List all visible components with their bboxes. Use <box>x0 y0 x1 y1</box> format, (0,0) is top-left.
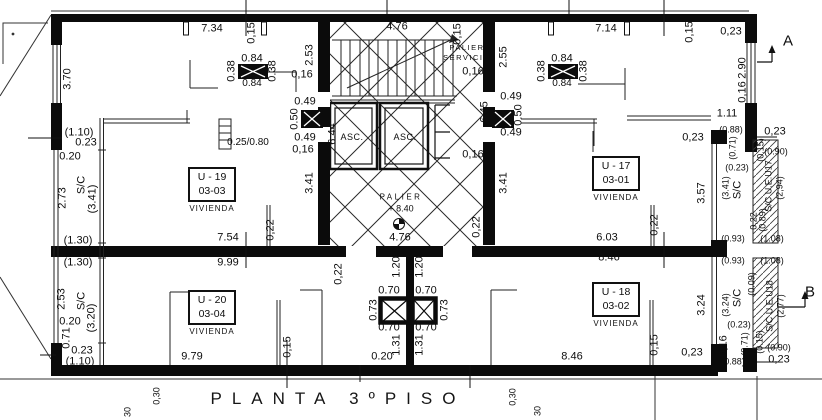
dimension-label: 0,23 <box>768 355 789 366</box>
unit-id: U - 20 <box>198 294 227 306</box>
dimension-label: 0.38 <box>579 60 590 81</box>
dimension-label: S/C U.E.U18 <box>766 280 775 332</box>
dimension-label: (1.30) <box>64 258 93 269</box>
dimension-label: 0.20 <box>59 152 80 163</box>
dimension-label: (3.24) <box>722 293 731 317</box>
dimension-label: 0.84 <box>242 79 261 89</box>
floor-plan-sheet: 7.340,154.760,157.140,150,232.900,161.11… <box>0 0 822 420</box>
dimension-label: 2.53 <box>305 44 316 65</box>
palier-servicio-label: PALIER SERVICIO <box>443 43 491 63</box>
dimension-label: 0.84 <box>552 79 571 89</box>
palier-servicio-line1: PALIER <box>449 43 484 52</box>
dimension-label: (0.90) <box>764 148 788 157</box>
dimension-label: 6.03 <box>596 233 617 244</box>
section-arrow-a <box>757 45 776 62</box>
dimension-label: 0.38 <box>268 60 279 81</box>
dimension-label: 0,16 <box>719 335 730 356</box>
unit-box: U - 17 03-01 <box>592 156 640 191</box>
plan-title: PLANTA 3ºPISO <box>183 389 493 409</box>
dimension-label: 1.11 <box>717 109 738 120</box>
dimension-label: 0,15 <box>247 22 258 43</box>
dimension-label: 6.44 <box>328 123 339 144</box>
dimension-label: 0,16 <box>462 67 483 78</box>
dimension-label: (0.09) <box>748 272 757 296</box>
dimension-label: 0,16 <box>292 145 313 156</box>
dimension-label: 0,16 <box>462 150 483 161</box>
unit-number: 03-04 <box>199 308 226 320</box>
dimension-label: (0.23) <box>727 321 751 330</box>
dimension-label: 6.45 <box>480 101 491 122</box>
unit-id: U - 17 <box>602 160 631 172</box>
unit-box: U - 20 03-04 <box>188 290 236 325</box>
dimension-label: 0.38 <box>227 60 238 81</box>
dimension-label: 0,16 <box>291 70 312 81</box>
dimension-label: (0.93) <box>721 257 745 266</box>
elevator-1-label: ASC. <box>340 132 363 142</box>
dimension-label: 3.24 <box>697 294 708 315</box>
dimension-label: S/C <box>733 181 744 199</box>
dimension-label: 7.34 <box>201 24 222 35</box>
dimension-label: 0.73 <box>369 299 380 320</box>
dimension-label: (0.71) <box>741 332 750 356</box>
dimension-label: 0.23 <box>75 138 96 149</box>
dimension-label: (1.10) <box>66 357 95 368</box>
dimension-label: 0,23 <box>720 27 741 38</box>
dimension-label: 0,30 <box>153 387 162 405</box>
dimension-label: (0.88) <box>719 126 743 135</box>
dimension-label: S/C U.E.U17 <box>765 160 774 212</box>
dimension-label: (3.41) <box>88 185 99 214</box>
unit-box: U - 19 03-03 <box>188 167 236 202</box>
dimension-label: 0.70 <box>415 323 436 334</box>
unit-u18: U - 18 03-02 VIVIENDA <box>592 282 640 328</box>
dimension-label: 0,22 <box>472 216 483 237</box>
palier-label: PALIER + 8.40 <box>380 193 423 214</box>
dimension-label: 0,15 <box>453 23 464 44</box>
elevator-2-label: ASC. <box>393 132 416 142</box>
unit-use: VIVIENDA <box>188 204 236 213</box>
unit-id: U - 19 <box>198 171 227 183</box>
dimension-label: 7.14 <box>595 24 616 35</box>
dimension-label: 1.20 <box>392 256 403 277</box>
dimension-label: 0,15 <box>650 334 661 355</box>
dimension-label: 0.49 <box>500 92 521 103</box>
dimension-label: 4.76 <box>386 22 407 33</box>
dimension-label: (3.41) <box>722 176 731 200</box>
unit-use: VIVIENDA <box>592 193 640 202</box>
dimension-label: (1.08) <box>760 257 784 266</box>
dimension-label: (0.88) <box>721 358 745 367</box>
section-marker-a: A <box>783 33 793 50</box>
dimension-label: 0,30 <box>509 388 518 406</box>
dimension-label: 0,23 <box>764 127 785 138</box>
dimension-label: 0,22 <box>266 219 277 240</box>
unit-use: VIVIENDA <box>188 327 236 336</box>
dimension-label: 0,23 <box>681 348 702 359</box>
unit-box: U - 18 03-02 <box>592 282 640 317</box>
unit-u17: U - 17 03-01 VIVIENDA <box>592 156 640 202</box>
dimension-label: 4.76 <box>389 233 410 244</box>
dimension-label: (2,77) <box>777 294 786 318</box>
palier-text: PALIER <box>380 193 423 202</box>
dimension-label: 0,15 <box>685 21 696 42</box>
dimension-label: (0.71) <box>729 136 738 160</box>
dimension-label: 8.46 <box>561 352 582 363</box>
dimension-label: 0,22 <box>650 214 661 235</box>
dimension-label: 0.84 <box>551 54 572 65</box>
dimension-label: 2.53 <box>57 288 68 309</box>
dimension-label: 3.41 <box>305 172 316 193</box>
unit-number: 03-01 <box>603 174 630 186</box>
dimension-label: 9.99 <box>217 258 238 269</box>
dimension-label: (0.89) <box>759 208 768 232</box>
palier-servicio-line2: SERVICIO <box>443 53 491 62</box>
dimension-label: 30 <box>534 406 543 416</box>
dimension-label: 0.84 <box>241 54 262 65</box>
dimension-label: S/C <box>733 289 744 307</box>
dimension-label: 3.70 <box>63 68 74 89</box>
dimension-label: 8.46 <box>598 253 619 264</box>
dimension-label: 0.49 <box>294 133 315 144</box>
dimension-label: 0.50 <box>290 108 301 129</box>
dimension-label: 0.49 <box>294 97 315 108</box>
unit-use: VIVIENDA <box>592 319 640 328</box>
dimension-label: 1.31 <box>415 334 426 355</box>
dimension-label: 3.41 <box>499 172 510 193</box>
dimension-label: 7.54 <box>217 233 238 244</box>
unit-u20: U - 20 03-04 VIVIENDA <box>188 290 236 336</box>
dimension-label: 3.57 <box>697 182 708 203</box>
dimension-label: (2,94) <box>776 176 785 200</box>
dimension-label: 0.25/0.80 <box>227 138 269 148</box>
dimension-label: 0.73 <box>440 299 451 320</box>
dimension-label: (0.90) <box>767 344 791 353</box>
dimension-label: (1.08) <box>760 235 784 244</box>
dimension-label: 0,23 <box>682 133 703 144</box>
dimension-label: (1.30) <box>64 236 93 247</box>
dimension-label: 0.50 <box>514 104 525 125</box>
dimension-label: (0.93) <box>721 235 745 244</box>
dimension-label: 30 <box>124 407 133 417</box>
dimension-label: 2.90 <box>738 57 749 78</box>
dimension-label: 0,22 <box>334 263 345 284</box>
palier-level: + 8.40 <box>380 204 423 214</box>
dimension-label: (3.20) <box>87 304 98 333</box>
dimension-label: 0.70 <box>378 286 399 297</box>
dimension-label: 2.55 <box>499 46 510 67</box>
dimension-label: 9.79 <box>181 352 202 363</box>
level-marker <box>394 219 405 230</box>
dimension-label: 0.38 <box>537 60 548 81</box>
dimension-label: 2.73 <box>58 187 69 208</box>
unit-number: 03-02 <box>603 300 630 312</box>
section-marker-b: B <box>805 284 815 301</box>
unit-id: U - 18 <box>602 286 631 298</box>
unit-u19: U - 19 03-03 VIVIENDA <box>188 167 236 213</box>
vent-shafts <box>381 299 436 323</box>
dimension-label: 1.31 <box>392 334 403 355</box>
dimension-label: 0.49 <box>500 128 521 139</box>
dimension-label: 0.70 <box>415 286 436 297</box>
dimension-label: 0.20 <box>371 352 392 363</box>
dimension-label: 0.20 <box>59 317 80 328</box>
dimension-label: (0.23) <box>725 164 749 173</box>
dimension-label: 0.70 <box>378 323 399 334</box>
dimension-label: 0,15 <box>283 336 294 357</box>
unit-number: 03-03 <box>199 185 226 197</box>
dimension-label: 0,16 <box>738 81 749 102</box>
dimension-label: (0.15) <box>756 330 765 354</box>
dimension-label: 1.20 <box>415 256 426 277</box>
